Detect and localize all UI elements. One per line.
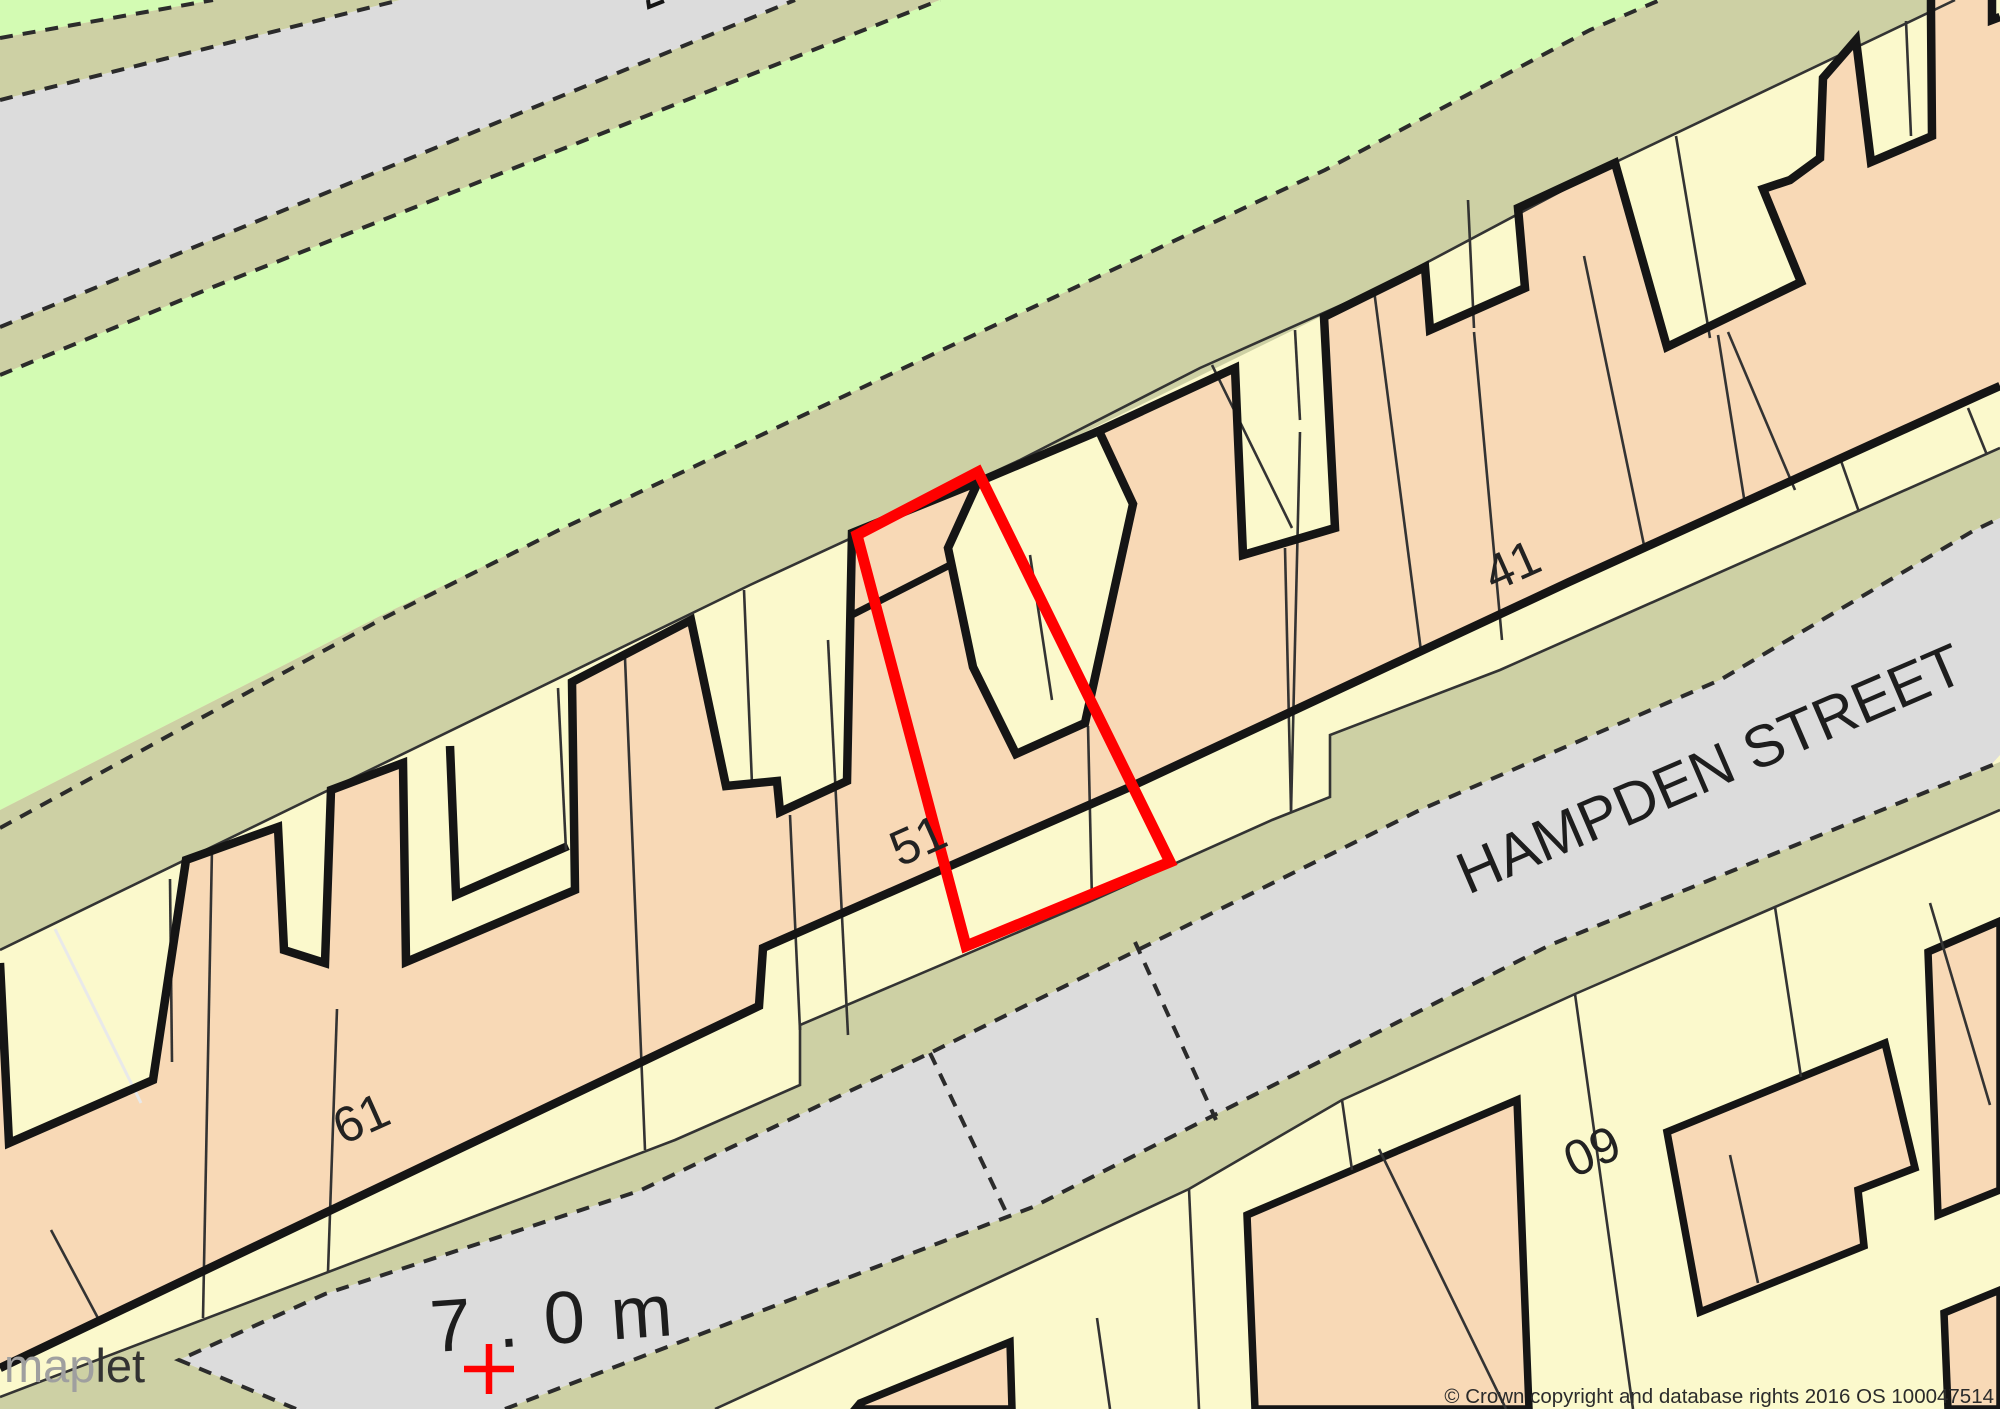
svg-text:maplet: maplet xyxy=(4,1339,145,1392)
svg-text:© Crown copyright and database: © Crown copyright and database rights 20… xyxy=(1444,1385,1994,1408)
